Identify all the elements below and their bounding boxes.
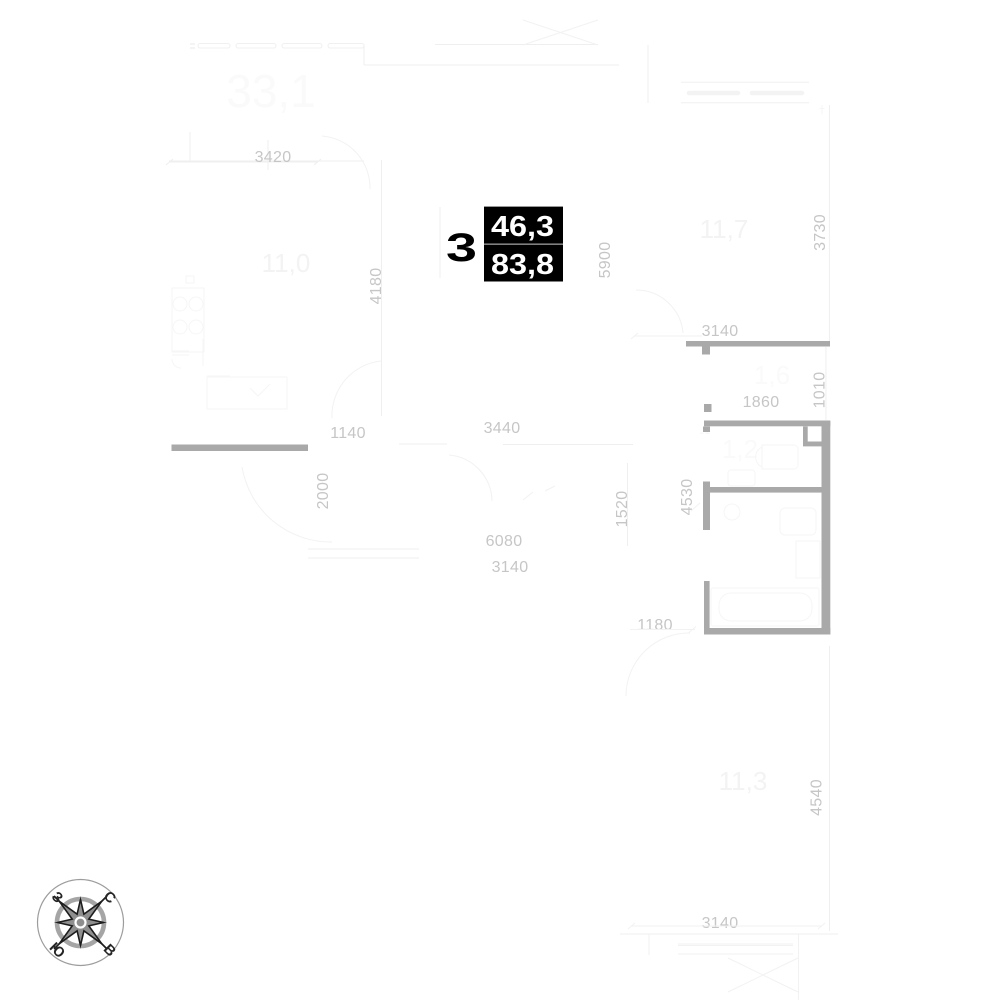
svg-text:4180: 4180 [368, 268, 385, 305]
svg-text:3140: 3140 [492, 559, 529, 576]
svg-text:3140: 3140 [702, 323, 739, 340]
svg-text:1140: 1140 [330, 425, 366, 442]
svg-text:1,2: 1,2 [722, 434, 758, 464]
svg-text:11,7: 11,7 [700, 214, 749, 244]
svg-text:3730: 3730 [812, 214, 829, 251]
svg-text:3440: 3440 [484, 420, 521, 437]
svg-text:1010: 1010 [812, 372, 829, 409]
svg-text:4540: 4540 [809, 779, 826, 816]
svg-text:1,6: 1,6 [754, 360, 790, 390]
svg-text:33,1: 33,1 [226, 65, 316, 117]
svg-text:83,8: 83,8 [491, 249, 554, 281]
svg-text:6080: 6080 [486, 533, 523, 550]
svg-text:1520: 1520 [614, 491, 631, 528]
svg-text:5900: 5900 [597, 242, 614, 279]
svg-text:46,3: 46,3 [491, 211, 554, 243]
svg-text:3420: 3420 [255, 149, 292, 166]
svg-text:3: 3 [446, 226, 477, 270]
svg-text:3140: 3140 [702, 915, 739, 932]
svg-text:11,3: 11,3 [719, 766, 768, 796]
svg-text:С: С [100, 888, 119, 907]
svg-text:4530: 4530 [679, 479, 696, 516]
svg-text:1180: 1180 [637, 617, 673, 634]
svg-text:1860: 1860 [743, 394, 780, 411]
svg-text:Ю: Ю [46, 940, 68, 962]
svg-text:2000: 2000 [315, 473, 332, 510]
svg-text:11,0: 11,0 [262, 248, 311, 278]
